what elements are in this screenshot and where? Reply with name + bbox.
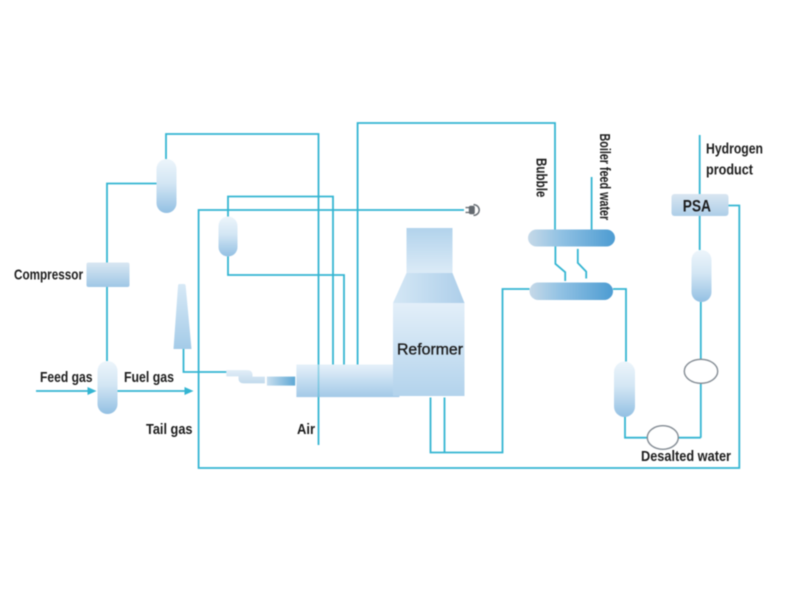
svg-text:Reformer: Reformer [397, 342, 463, 359]
svg-text:Air: Air [297, 421, 315, 438]
svg-text:Fuel gas: Fuel gas [124, 369, 174, 386]
svg-text:Hydrogen: Hydrogen [706, 141, 763, 158]
svg-text:Bubble: Bubble [533, 158, 550, 197]
svg-text:Tail gas: Tail gas [146, 421, 193, 438]
svg-text:Compressor: Compressor [14, 267, 83, 284]
svg-text:Boiler feed water: Boiler feed water [596, 134, 613, 221]
svg-text:PSA: PSA [683, 198, 711, 216]
svg-text:Desalted water: Desalted water [641, 448, 731, 465]
svg-text:Feed gas: Feed gas [40, 369, 93, 386]
svg-text:product: product [706, 162, 753, 179]
